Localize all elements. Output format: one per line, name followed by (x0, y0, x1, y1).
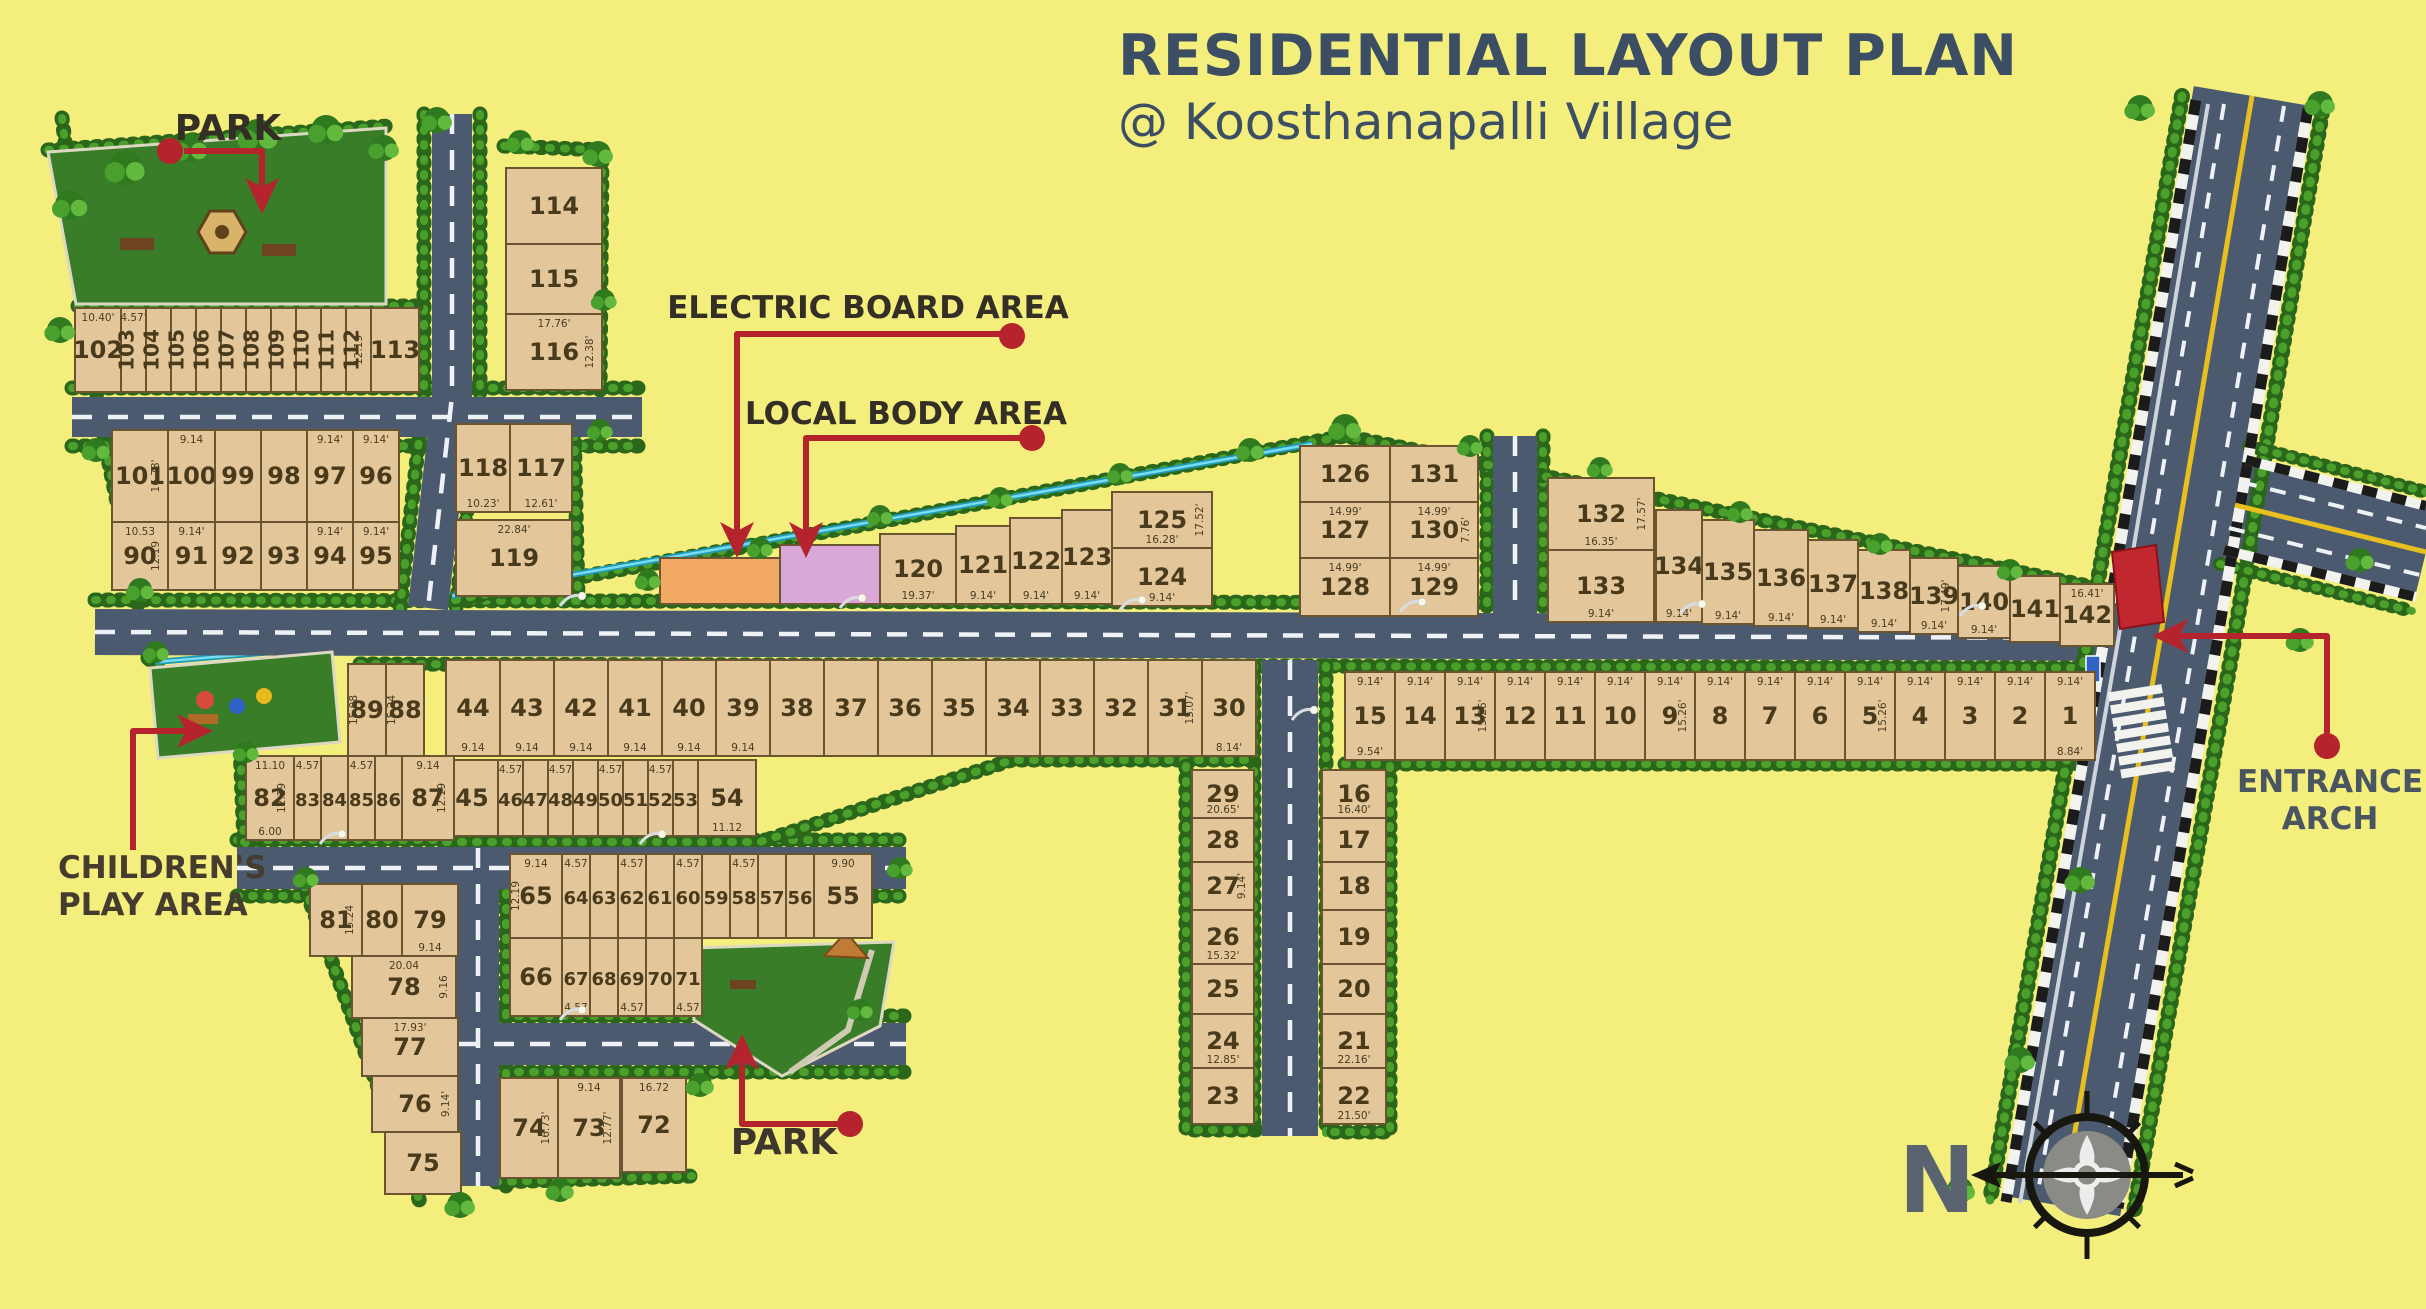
entrance-arch-icon (2112, 545, 2164, 629)
plot-number-20: 20 (1337, 975, 1370, 1003)
plot-number-68: 68 (591, 969, 616, 990)
dim-label: 9.14' (1768, 612, 1794, 624)
title-line2: @ Koosthanapalli Village (1118, 94, 2018, 152)
plots-45-54: 4512.19464.5747484.5749504.5751524.57535… (446, 760, 756, 836)
plan-title: RESIDENTIAL LAYOUT PLAN @ Koosthanapalli… (1118, 24, 2018, 151)
dim-label: 4.57 (732, 858, 755, 870)
dim-label: 4.57 (620, 1002, 643, 1014)
plot-number-80: 80 (365, 906, 398, 934)
plot-number-126: 126 (1320, 460, 1370, 488)
plot-number-142: 142 (2062, 601, 2112, 629)
dim-label: 6.00 (258, 826, 281, 838)
dim-label: 9.14' (1666, 608, 1692, 620)
dim-label: 9.14' (1657, 676, 1683, 688)
dim-label: 9.14' (1407, 676, 1433, 688)
dim-label: 9.14 (180, 434, 204, 446)
plot-number-103: 103 (115, 329, 139, 371)
plot-number-40: 40 (672, 694, 705, 722)
layout-map: 10210.40'1034.57'10410510610710810911011… (0, 0, 2426, 1309)
dim-label: 9.14' (2057, 676, 2083, 688)
title-line1: RESIDENTIAL LAYOUT PLAN (1118, 24, 2018, 90)
dim-label: 9.14 (418, 942, 442, 954)
dim-label: 15.26' (1677, 700, 1689, 733)
plot-number-66: 66 (519, 963, 552, 991)
plot-number-116: 116 (529, 338, 579, 366)
dim-label: 7.76' (1460, 517, 1472, 543)
plot-number-97: 97 (313, 462, 346, 490)
dim-label: 4.57 (564, 858, 587, 870)
dim-label: 9.90 (831, 858, 854, 870)
dim-label: 15.07' (1184, 692, 1196, 725)
plot-number-96: 96 (359, 462, 392, 490)
plot-number-62: 62 (619, 888, 644, 909)
plot-number-61: 61 (647, 888, 672, 909)
plot-number-24: 24 (1206, 1027, 1239, 1055)
plot-number-137: 137 (1808, 570, 1858, 598)
dim-label: 22.84' (498, 524, 531, 536)
plot-number-60: 60 (675, 888, 700, 909)
entrance-arch-label-dot (2314, 733, 2340, 759)
plot-number-64: 64 (563, 888, 588, 909)
dim-label: 9.14' (1588, 608, 1614, 620)
plot-number-95: 95 (359, 542, 392, 570)
dim-label: 17.57' (1636, 498, 1648, 531)
dim-label: 17.76' (538, 318, 571, 330)
plot-number-92: 92 (221, 542, 254, 570)
dim-label: 12.19 (150, 541, 162, 571)
plot-number-84: 84 (322, 790, 347, 811)
plot-number-49: 49 (573, 790, 598, 811)
plot-number-124: 124 (1137, 563, 1187, 591)
dim-label: 17.49' (1940, 580, 1952, 613)
plots-117-119: 11810.23'11712.61'11922.84' (456, 424, 572, 596)
plot-number-47: 47 (523, 790, 548, 811)
plot-number-125: 125 (1137, 506, 1187, 534)
dim-label: 10.23' (467, 498, 500, 510)
plots-88-89: 8915.088815.24 (348, 664, 424, 756)
plot-number-91: 91 (175, 542, 208, 570)
dim-label: 9.14' (1820, 614, 1846, 626)
plot-number-25: 25 (1206, 975, 1239, 1003)
plot-number-6: 6 (1812, 702, 1829, 730)
dim-label: 9.14 (569, 742, 593, 754)
plot-number-39: 39 (726, 694, 759, 722)
dim-label: 16.40' (1338, 804, 1371, 816)
plot-number-21: 21 (1337, 1027, 1370, 1055)
dim-label: 14.99' (1418, 506, 1451, 518)
plot-number-46: 46 (498, 790, 523, 811)
plot-number-120: 120 (893, 555, 943, 583)
plot-number-75: 75 (406, 1149, 439, 1177)
dim-label: 9.14' (1971, 624, 1997, 636)
dim-label: 9.14 (623, 742, 647, 754)
plot-number-59: 59 (703, 888, 728, 909)
plot-number-38: 38 (780, 694, 813, 722)
dim-label: 4.57' (120, 312, 146, 324)
dim-label: 4.57 (499, 764, 522, 776)
playset-icon (229, 698, 245, 714)
plot-number-131: 131 (1409, 460, 1459, 488)
plot-number-117: 117 (516, 454, 566, 482)
plot-number-100: 100 (166, 462, 216, 490)
dim-label: 9.14' (1357, 676, 1383, 688)
plot-number-30: 30 (1212, 694, 1245, 722)
plot-number-18: 18 (1337, 872, 1370, 900)
bench-icon (730, 980, 756, 989)
residential-layout-plan: { "title": {"line1": "RESIDENTIAL LAYOUT… (0, 0, 2426, 1309)
dim-label: 12.85' (1207, 1054, 1240, 1066)
dim-label: 15.08 (348, 695, 360, 725)
plots-82-87: 8211.106.0012.19834.5784854.5786879.1412… (246, 756, 454, 840)
bench-icon (262, 244, 296, 256)
plot-number-85: 85 (349, 790, 374, 811)
dim-label: 16.35' (1585, 536, 1618, 548)
plot-number-71: 71 (675, 969, 700, 990)
dim-label: 9.14' (1857, 676, 1883, 688)
plot-number-114: 114 (529, 192, 579, 220)
plot-number-51: 51 (623, 790, 648, 811)
dim-label: 9.14 (416, 760, 440, 772)
plot-number-79: 79 (413, 906, 446, 934)
plot-number-22: 22 (1337, 1082, 1370, 1110)
dim-label: 8.14' (1216, 742, 1242, 754)
plot-number-2: 2 (2012, 702, 2029, 730)
plot-number-7: 7 (1762, 702, 1779, 730)
plot-number-17: 17 (1337, 826, 1370, 854)
plot-number-77: 77 (393, 1033, 426, 1061)
dim-label: 9.14' (2007, 676, 2033, 688)
plot-number-56: 56 (787, 888, 812, 909)
plot-number-121: 121 (958, 551, 1008, 579)
dim-label: 8.84' (2057, 746, 2083, 758)
dim-label: 12.61' (525, 498, 558, 510)
plot-number-45: 45 (455, 784, 488, 812)
plot-number-42: 42 (564, 694, 597, 722)
plot-number-76: 76 (398, 1090, 431, 1118)
dim-label: 9.14' (1074, 590, 1100, 602)
dim-label: 9.14' (970, 590, 996, 602)
plot-number-127: 127 (1320, 516, 1370, 544)
dim-label: 9.14' (178, 526, 204, 538)
dim-label: 9.14' (440, 1091, 452, 1117)
plot-number-19: 19 (1337, 923, 1370, 951)
plot-number-78: 78 (387, 973, 420, 1001)
dim-label: 11.12 (712, 822, 742, 834)
dim-label: 12.19 (436, 783, 448, 813)
amenity-area (660, 558, 780, 604)
plot-number-133: 133 (1576, 572, 1626, 600)
dim-label: 21.50' (1338, 1110, 1371, 1122)
dim-label: 9.14' (1457, 676, 1483, 688)
dim-label: 9.14' (317, 526, 343, 538)
dim-label: 9.14' (317, 434, 343, 446)
dim-label: 4.57 (676, 858, 699, 870)
electric-board-label-dot (999, 323, 1025, 349)
plot-number-108: 108 (240, 329, 264, 371)
plot-number-27: 27 (1206, 872, 1239, 900)
main-spine-road (95, 632, 2155, 638)
dim-label: 4.57 (549, 764, 572, 776)
dim-label: 9.14' (363, 526, 389, 538)
plot-number-15: 15 (1353, 702, 1386, 730)
plots-30-44: 449.14439.14429.14419.14409.14399.143837… (446, 660, 1256, 756)
park-bottom-label-dot (837, 1111, 863, 1137)
dim-label: 14.99' (1329, 562, 1362, 574)
plot-number-141: 141 (2010, 595, 2060, 623)
plot-number-83: 83 (295, 790, 320, 811)
plot-number-43: 43 (510, 694, 543, 722)
plot-number-132: 132 (1576, 500, 1626, 528)
playset-icon (196, 691, 214, 709)
plot-number-33: 33 (1050, 694, 1083, 722)
dim-label: 10.40' (82, 312, 115, 324)
plot-number-36: 36 (888, 694, 921, 722)
dim-label: 17.93' (394, 1022, 427, 1034)
childrens-play-label-text: PLAY AREA (58, 887, 248, 923)
dim-label: 4.57 (350, 760, 373, 772)
plot-number-138: 138 (1859, 577, 1909, 605)
plot-number-48: 48 (548, 790, 573, 811)
plot-number-63: 63 (591, 888, 616, 909)
dim-label: 9.14' (1907, 676, 1933, 688)
dim-label: 10.53 (125, 526, 155, 538)
dim-label: 17.52' (1194, 504, 1206, 537)
bench-icon (120, 238, 154, 250)
plot-number-34: 34 (996, 694, 1029, 722)
dim-label: 15.24 (386, 695, 398, 725)
dim-label: 15.26' (1477, 700, 1489, 733)
dim-label: 15.24 (344, 905, 356, 935)
dim-label: 9.14' (1757, 676, 1783, 688)
plot-number-3: 3 (1962, 702, 1979, 730)
plots-132-133: 13216.35'17.57'1339.14' (1548, 478, 1654, 622)
dim-label: 12.19 (353, 335, 365, 365)
plot-number-32: 32 (1104, 694, 1137, 722)
dim-label: 22.16' (1338, 1054, 1371, 1066)
park-top-label-text: PARK (175, 108, 283, 149)
playset-icon (256, 688, 272, 704)
plots-102-113: 10210.40'1034.57'10410510610710810911011… (73, 308, 420, 392)
plot-number-118: 118 (458, 454, 508, 482)
plot-number-113: 113 (370, 336, 420, 364)
plots-96-101: 10116.78'1009.149998979.14'969.14'9010.5… (112, 430, 399, 590)
plot-number-111: 111 (315, 329, 339, 371)
plot-number-107: 107 (215, 329, 239, 371)
dim-label: 11.10 (255, 760, 285, 772)
plot-number-50: 50 (598, 790, 623, 811)
dim-label: 16.78' (150, 460, 162, 493)
plot-number-106: 106 (190, 329, 214, 371)
plot-number-109: 109 (265, 329, 289, 371)
plots-126-131: 12613112714.99'13014.99'7.76'12814.99'12… (1300, 446, 1478, 616)
entrance-arch-label-text: ARCH (2282, 801, 2379, 837)
dim-label: 14.99' (1418, 562, 1451, 574)
plot-number-134: 134 (1654, 552, 1704, 580)
dim-label: 19.37' (902, 590, 935, 602)
local-body-label-text: LOCAL BODY AREA (745, 396, 1067, 432)
dim-label: 12.38' (584, 336, 596, 369)
dim-label: 9.14' (1023, 590, 1049, 602)
plot-number-35: 35 (942, 694, 975, 722)
plot-number-115: 115 (529, 265, 579, 293)
dim-label: 16.28' (1146, 534, 1179, 546)
plot-number-23: 23 (1206, 1082, 1239, 1110)
electric-board-label-text: ELECTRIC BOARD AREA (667, 290, 1069, 326)
dim-label: 9.14' (1707, 676, 1733, 688)
plot-number-86: 86 (376, 790, 401, 811)
plot-number-129: 129 (1409, 573, 1459, 601)
dim-label: 9.14 (731, 742, 755, 754)
plot-number-28: 28 (1206, 826, 1239, 854)
dim-label: 12.77' (602, 1112, 614, 1145)
dim-label: 14.99' (1329, 506, 1362, 518)
dim-label: 9.54' (1357, 746, 1383, 758)
dim-label: 9.14' (1557, 676, 1583, 688)
dim-label: 9.14 (461, 742, 485, 754)
plot-number-72: 72 (637, 1111, 670, 1139)
dim-label: 9.14' (1715, 610, 1741, 622)
dim-label: 12.19 (276, 783, 288, 813)
plot-number-44: 44 (456, 694, 489, 722)
plot-number-104: 104 (140, 329, 164, 371)
plot-number-14: 14 (1403, 702, 1436, 730)
dim-label: 9.14 (577, 1082, 601, 1094)
dim-label: 9.14' (1607, 676, 1633, 688)
dim-label: 4.57 (676, 1002, 699, 1014)
dim-label: 16.73' (540, 1112, 552, 1145)
plot-number-12: 12 (1503, 702, 1536, 730)
dim-label: 9.14' (363, 434, 389, 446)
childrens-play-label-text: CHILDREN'S (58, 850, 267, 886)
plot-number-54: 54 (710, 784, 743, 812)
plot-number-98: 98 (267, 462, 300, 490)
plots-16-22: 1616.40'171819202122.16'2221.50' (1322, 770, 1386, 1124)
plot-number-110: 110 (290, 329, 314, 371)
plot-number-65: 65 (519, 882, 552, 910)
dim-label: 9.14' (1236, 873, 1248, 899)
entrance-arch-label-text: ENTRANCE (2237, 764, 2423, 800)
dim-label: 9.14' (1807, 676, 1833, 688)
plot-number-93: 93 (267, 542, 300, 570)
plot-number-52: 52 (648, 790, 673, 811)
plot-number-53: 53 (673, 790, 698, 811)
dim-label: 15.26' (1877, 700, 1889, 733)
plot-number-10: 10 (1603, 702, 1636, 730)
dim-label: 15.32' (1207, 950, 1240, 962)
plot-number-4: 4 (1912, 702, 1929, 730)
plot-number-99: 99 (221, 462, 254, 490)
plot-number-128: 128 (1320, 573, 1370, 601)
plot-number-26: 26 (1206, 923, 1239, 951)
dim-label: 9.14' (1507, 676, 1533, 688)
north-label: N (1899, 1127, 1976, 1234)
plot-number-69: 69 (619, 969, 644, 990)
plot-number-8: 8 (1712, 702, 1729, 730)
dim-label: 9.14' (1871, 618, 1897, 630)
dim-label: 9.14 (515, 742, 539, 754)
plots-23-29: 2920.65'28279.14'2615.32'252412.85'23 (1192, 770, 1254, 1124)
plot-number-9: 9 (1662, 702, 1679, 730)
plot-number-67: 67 (563, 969, 588, 990)
plot-number-58: 58 (731, 888, 756, 909)
plot-number-55: 55 (826, 882, 859, 910)
plot-number-119: 119 (489, 544, 539, 572)
plot-number-94: 94 (313, 542, 346, 570)
plot-number-105: 105 (165, 329, 189, 371)
dim-label: 9.14' (1149, 592, 1175, 604)
dim-label: 4.57 (649, 764, 672, 776)
plot-number-70: 70 (647, 969, 672, 990)
dim-label: 20.04 (389, 960, 419, 972)
dim-label: 12.19 (510, 881, 522, 911)
dim-label: 4.57 (296, 760, 319, 772)
dim-label: 9.14 (524, 858, 548, 870)
plot-number-1: 1 (2062, 702, 2079, 730)
plots-114-116: 11411511617.76'12.38' (506, 168, 602, 390)
dim-label: 9.14' (1957, 676, 1983, 688)
plot-number-41: 41 (618, 694, 651, 722)
plot-number-37: 37 (834, 694, 867, 722)
plot-number-57: 57 (759, 888, 784, 909)
dim-label: 4.57 (599, 764, 622, 776)
plot-number-11: 11 (1553, 702, 1586, 730)
plot-number-135: 135 (1703, 558, 1753, 586)
dim-label: 16.72 (639, 1082, 669, 1094)
dim-label: 20.65' (1207, 804, 1240, 816)
plot-number-130: 130 (1409, 516, 1459, 544)
dim-label: 9.14' (1921, 620, 1947, 632)
dim-label: 9.14 (677, 742, 701, 754)
plot-number-136: 136 (1756, 564, 1806, 592)
dim-label: 4.57 (620, 858, 643, 870)
dim-label: 16.41' (2071, 588, 2104, 600)
plots-72-74: 7416.73'739.1412.77'7216.72 (500, 1078, 686, 1178)
gazebo-center (215, 225, 229, 239)
park-bottom-label-text: PARK (731, 1122, 839, 1163)
plot-number-140: 140 (1959, 588, 2009, 616)
plot-number-73: 73 (572, 1114, 605, 1142)
plot-number-5: 5 (1862, 702, 1879, 730)
plots-1-15: 159.14'9.54'149.14'139.14'15.26'129.14'1… (1345, 672, 2095, 760)
dim-label: 9.16 (438, 975, 450, 999)
plot-number-122: 122 (1011, 547, 1061, 575)
plot-number-123: 123 (1062, 543, 1112, 571)
